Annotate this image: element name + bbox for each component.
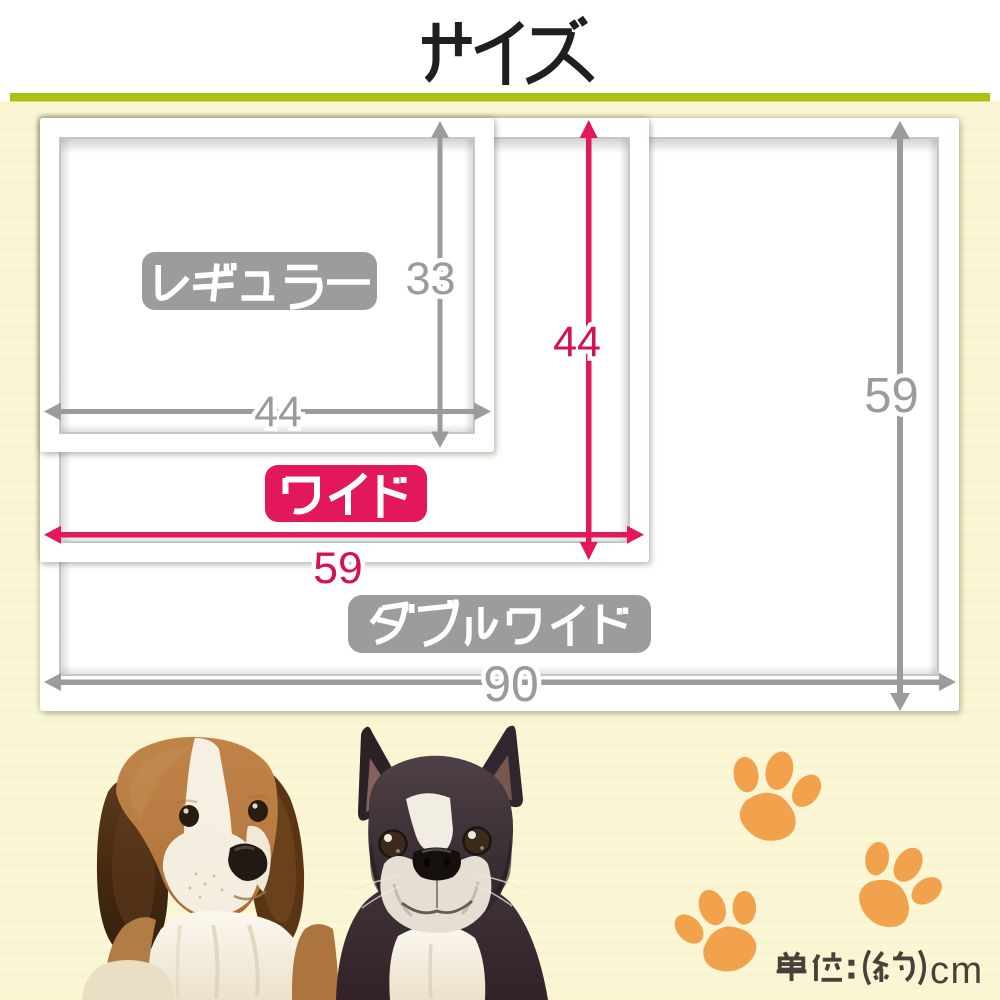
svg-text:44: 44 <box>254 388 302 436</box>
svg-text:33: 33 <box>405 253 455 304</box>
svg-text:59: 59 <box>313 544 363 593</box>
svg-text:44: 44 <box>553 318 601 366</box>
svg-text:cm: cm <box>930 950 984 992</box>
svg-text:90: 90 <box>483 656 539 712</box>
svg-text:59: 59 <box>864 369 919 423</box>
